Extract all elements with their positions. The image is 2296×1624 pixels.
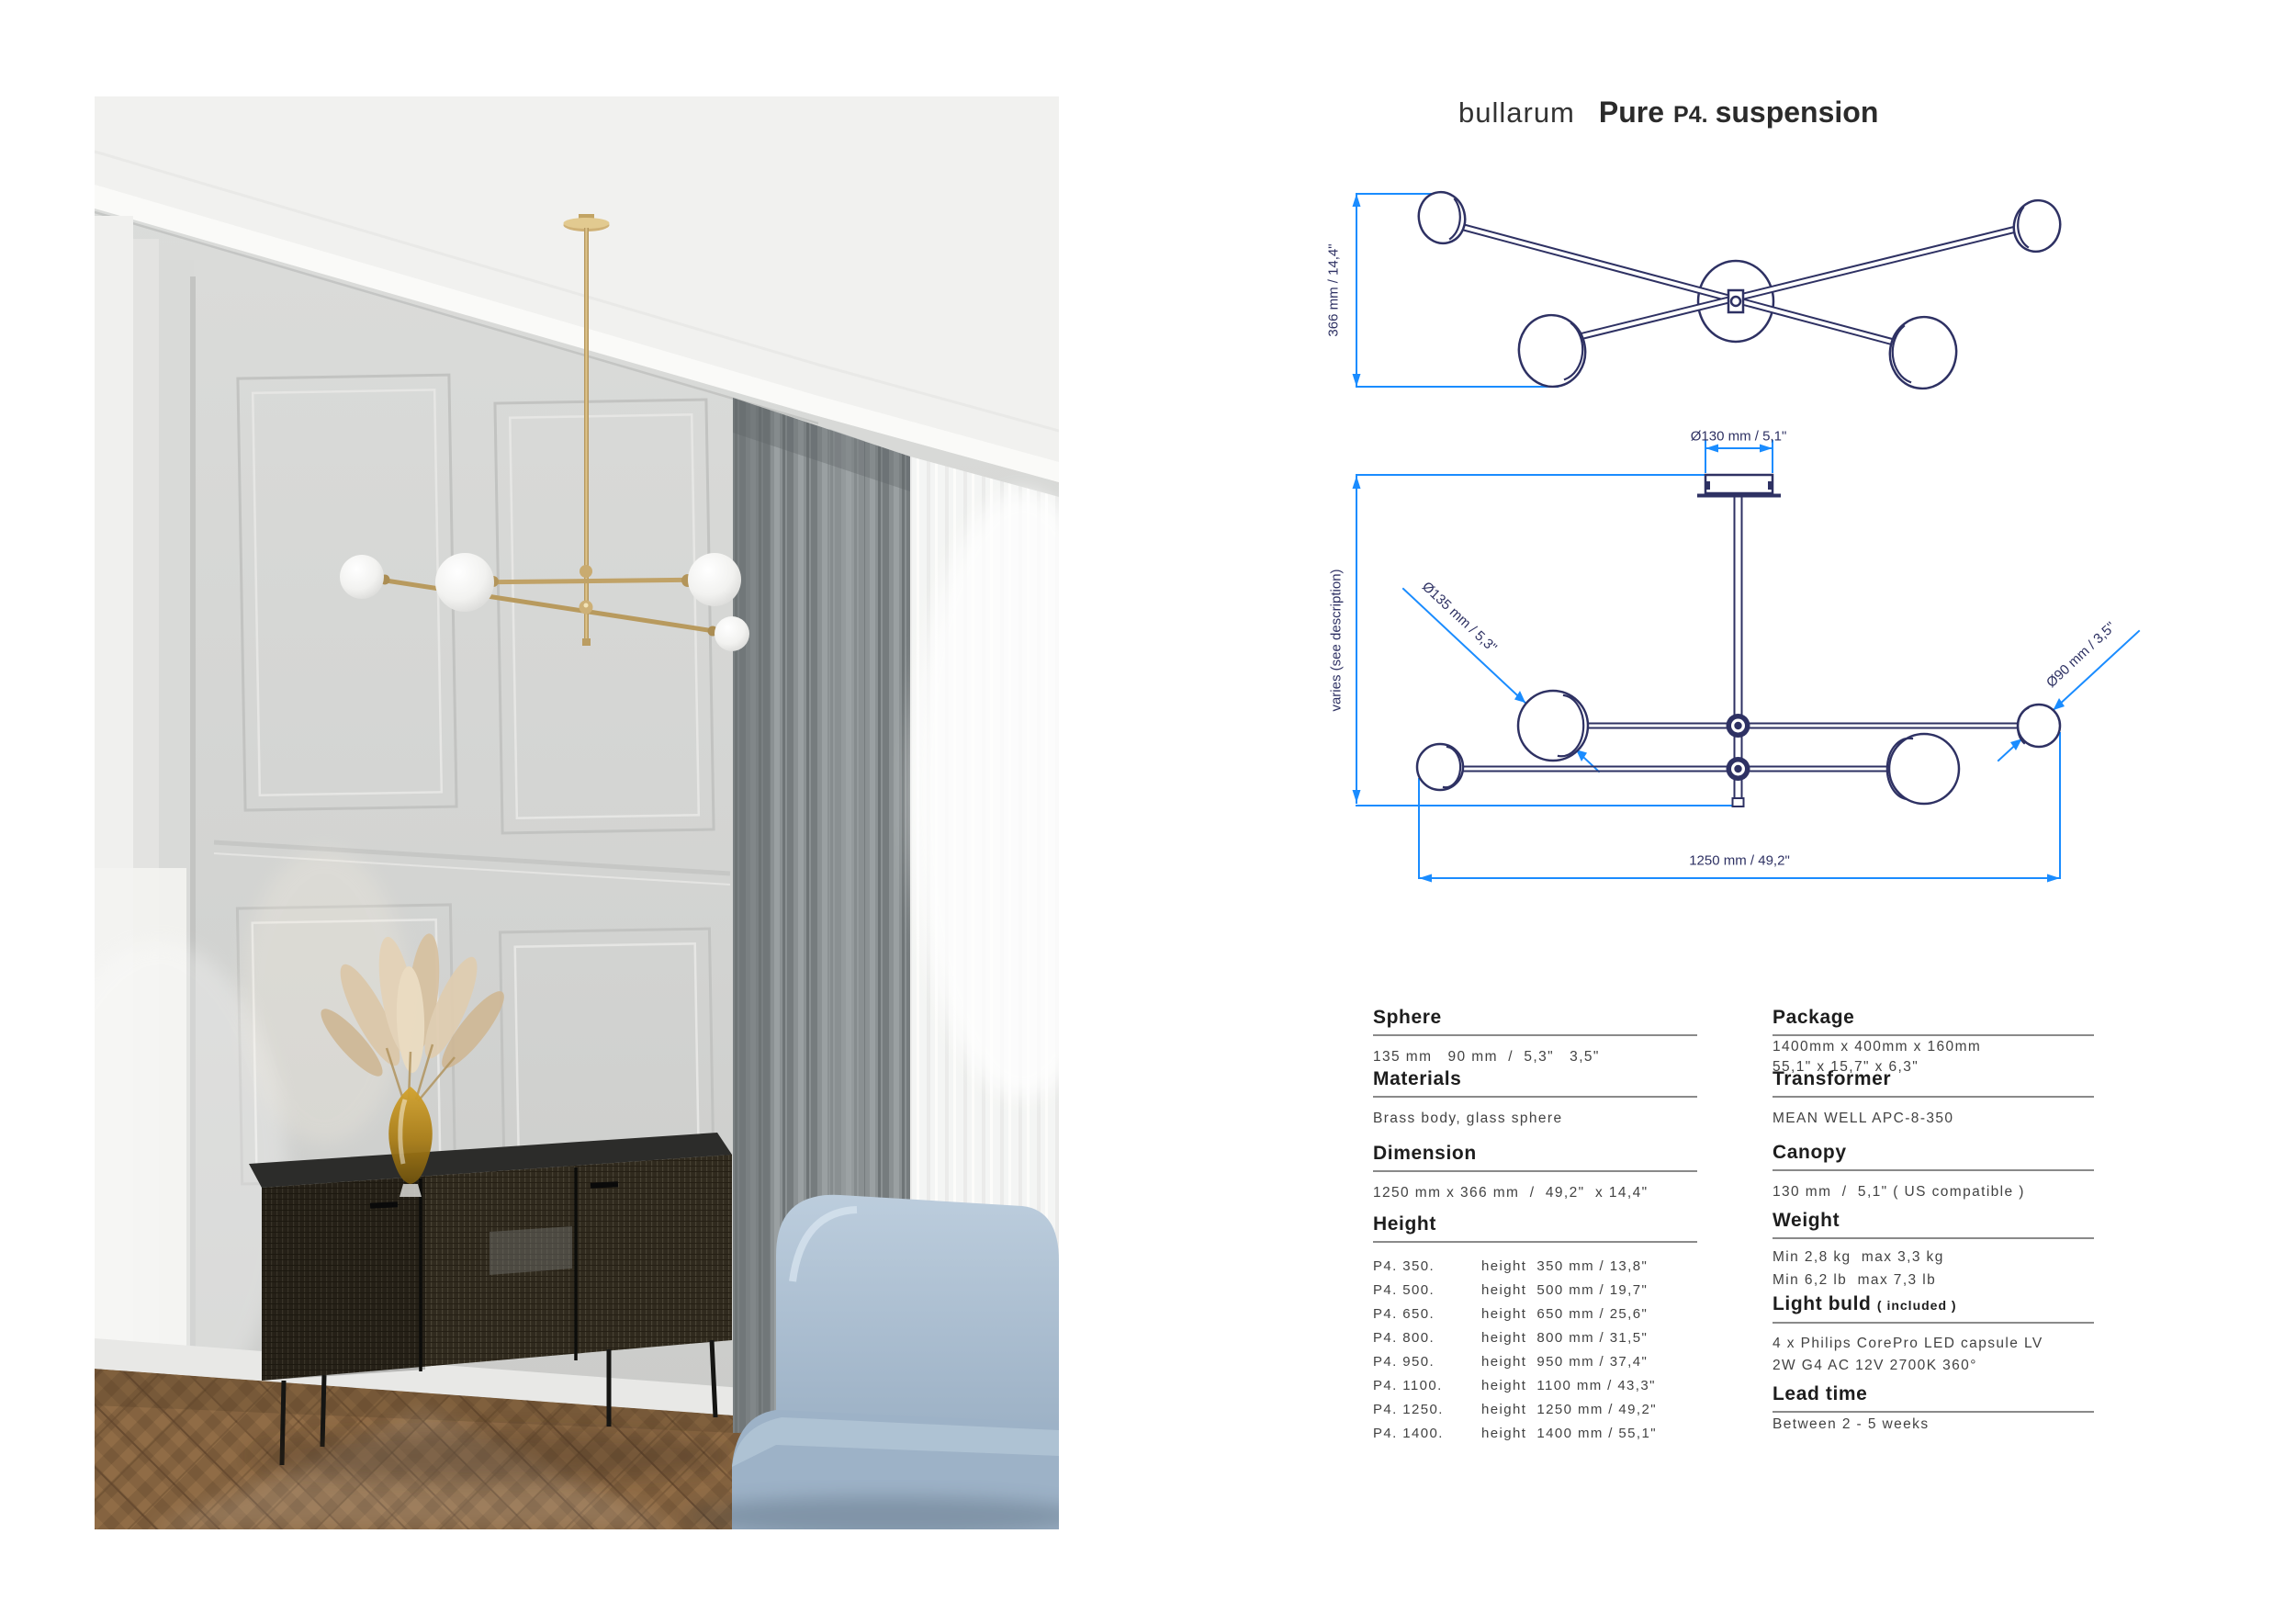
- spec-heading-height: Height: [1373, 1213, 1436, 1235]
- glass-sphere: [715, 616, 749, 651]
- spec-value-materials: Brass body, glass sphere: [1373, 1111, 1562, 1127]
- dim-label-drop-varies: varies (see description): [1329, 569, 1345, 711]
- spec-sheet-page: bullarum Pure P4. suspension: [0, 0, 2296, 1624]
- spec-value-dimension: 1250 mm x 366 mm / 49,2" x 14,4": [1373, 1185, 1649, 1201]
- spec-heading-canopy: Canopy: [1773, 1142, 1847, 1164]
- spec-value-lead-time: Between 2 - 5 weeks: [1773, 1416, 1929, 1433]
- spec-value-package-1: 1400mm x 400mm x 160mm: [1773, 1039, 1981, 1055]
- spec-heading-materials: Materials: [1373, 1068, 1461, 1090]
- height-row: P4. 350.height 350 mm / 13,8": [1373, 1258, 1648, 1274]
- spec-heading-weight: Weight: [1773, 1210, 1840, 1232]
- spec-value-canopy: 130 mm / 5,1" ( US compatible ): [1773, 1184, 2025, 1201]
- height-row: P4. 1400.height 1400 mm / 55,1": [1373, 1426, 1657, 1441]
- glass-sphere: [340, 555, 384, 599]
- height-row: P4. 1250.height 1250 mm / 49,2": [1373, 1402, 1657, 1417]
- technical-drawing-top-view: [1353, 187, 2066, 394]
- spec-heading-sphere: Sphere: [1373, 1007, 1442, 1029]
- spec-value-transformer: MEAN WELL APC-8-350: [1773, 1111, 1953, 1127]
- spec-heading-bulb: Light buld ( included ): [1773, 1293, 1957, 1315]
- product-name: Pure: [1599, 96, 1664, 130]
- technical-drawing-side-view: [1353, 441, 2140, 883]
- dim-label-canopy-130: Ø130 mm / 5,1": [1691, 429, 1787, 445]
- technical-drawing-lines: [1286, 165, 2186, 955]
- height-row: P4. 950.height 950 mm / 37,4": [1373, 1354, 1648, 1370]
- glass-sphere: [435, 553, 494, 612]
- spec-value-weight-1: Min 2,8 kg max 3,3 kg: [1773, 1249, 1944, 1266]
- height-row: P4. 1100.height 1100 mm / 43,3": [1373, 1378, 1656, 1393]
- height-row: P4. 650.height 650 mm / 25,6": [1373, 1306, 1648, 1322]
- product-type: suspension: [1716, 96, 1879, 130]
- spec-value-bulb-2: 2W G4 AC 12V 2700K 360°: [1773, 1358, 1977, 1374]
- product-model: P4.: [1673, 102, 1708, 129]
- page-title: bullarum Pure P4. suspension: [1458, 96, 1878, 130]
- spec-heading-dimension: Dimension: [1373, 1143, 1477, 1165]
- dim-label-height-366: 366 mm / 14,4": [1326, 243, 1342, 336]
- spec-heading-transformer: Transformer: [1773, 1068, 1891, 1090]
- dim-label-width-1250: 1250 mm / 49,2": [1689, 853, 1790, 869]
- room-photo: [95, 96, 1059, 1529]
- height-row: P4. 800.height 800 mm / 31,5": [1373, 1330, 1648, 1346]
- spec-value-bulb-1: 4 x Philips CorePro LED capsule LV: [1773, 1336, 2043, 1352]
- spec-heading-lead-time: Lead time: [1773, 1383, 1867, 1405]
- spec-heading-package: Package: [1773, 1007, 1854, 1029]
- brand-name: bullarum: [1458, 96, 1575, 130]
- spec-value-sphere: 135 mm 90 mm / 5,3" 3,5": [1373, 1049, 1600, 1066]
- technical-drawings: 366 mm / 14,4" Ø130 mm / 5,1" varies (se…: [1286, 165, 2186, 955]
- glass-sphere: [688, 553, 741, 606]
- height-row: P4. 500.height 500 mm / 19,7": [1373, 1282, 1648, 1298]
- spec-value-weight-2: Min 6,2 lb max 7,3 lb: [1773, 1272, 1936, 1289]
